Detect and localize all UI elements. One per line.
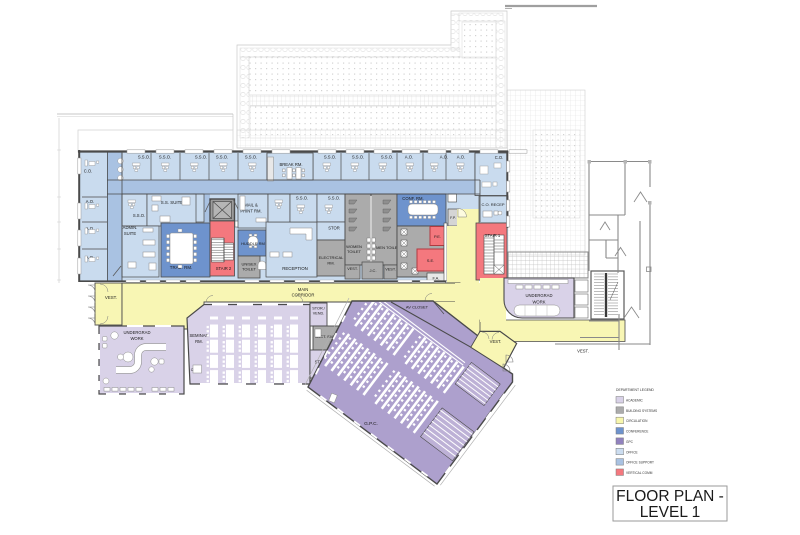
svg-text:A.O.: A.O. <box>457 155 465 160</box>
svg-text:SEMINAR: SEMINAR <box>189 333 208 338</box>
svg-text:S.E.: S.E. <box>427 258 435 263</box>
svg-text:F.A.: F.A. <box>433 276 440 281</box>
svg-text:LEVEL 1: LEVEL 1 <box>640 504 701 521</box>
svg-text:TOILET: TOILET <box>242 267 256 272</box>
svg-text:STAIR 1: STAIR 1 <box>485 233 501 238</box>
svg-text:S.S. SUITE: S.S. SUITE <box>161 200 184 205</box>
svg-text:MAIN: MAIN <box>298 287 308 292</box>
svg-text:C: C <box>191 368 194 372</box>
svg-text:UNDERGRAD: UNDERGRAD <box>124 330 151 335</box>
svg-text:C.O.: C.O. <box>495 155 504 160</box>
svg-text:S.S.O.: S.S.O. <box>216 155 228 160</box>
svg-text:J.C.: J.C. <box>369 268 376 273</box>
svg-text:CORRIDOR: CORRIDOR <box>292 293 315 298</box>
svg-text:OFFICE: OFFICE <box>626 450 638 454</box>
svg-text:DEPARTMENT LEGEND: DEPARTMENT LEGEND <box>616 388 654 392</box>
svg-text:S.S.O.: S.S.O. <box>195 155 207 160</box>
svg-text:S.S.O.: S.S.O. <box>159 155 171 160</box>
svg-text:AV CLOSET: AV CLOSET <box>406 305 429 310</box>
svg-text:S.S.O.: S.S.O. <box>381 155 393 160</box>
svg-text:ELECTRICAL: ELECTRICAL <box>319 255 344 260</box>
svg-text:VEST.: VEST. <box>105 295 117 300</box>
svg-text:F.P.: F.P. <box>450 216 456 220</box>
svg-text:SUITE: SUITE <box>124 231 137 236</box>
svg-text:G.P.C.: G.P.C. <box>364 421 378 427</box>
svg-text:STAIR 2: STAIR 2 <box>216 266 232 271</box>
svg-text:S.S.O.: S.S.O. <box>296 196 308 201</box>
svg-text:RM.: RM. <box>195 339 203 344</box>
svg-text:RM.: RM. <box>327 261 334 266</box>
svg-text:MAIL &: MAIL & <box>244 203 258 208</box>
svg-text:VEST.: VEST. <box>347 267 358 271</box>
svg-text:S.S.O.: S.S.O. <box>352 155 364 160</box>
svg-text:STOR: STOR <box>328 226 340 231</box>
svg-text:VEST.: VEST. <box>385 268 396 272</box>
svg-text:CIRCULATION: CIRCULATION <box>626 419 648 423</box>
svg-text:S.S.O.: S.S.O. <box>328 196 340 201</box>
svg-text:VERTICAL COMM: VERTICAL COMM <box>626 471 653 475</box>
svg-text:C.O. RECEP: C.O. RECEP <box>481 202 504 207</box>
svg-text:UNDERGRAD: UNDERGRAD <box>526 293 553 298</box>
svg-text:BREAK RM.: BREAK RM. <box>279 162 302 167</box>
svg-text:VEND.: VEND. <box>313 312 325 316</box>
svg-text:VEST.: VEST. <box>490 339 502 344</box>
svg-text:VEST.: VEST. <box>577 349 589 354</box>
svg-text:ACADEMIC: ACADEMIC <box>626 399 644 403</box>
svg-text:S.S.O.: S.S.O. <box>133 213 145 218</box>
svg-text:S.S.O.: S.S.O. <box>324 155 336 160</box>
svg-text:RECEPTION: RECEPTION <box>282 266 308 271</box>
svg-text:GPC: GPC <box>626 440 634 444</box>
svg-text:HUDDLE RM: HUDDLE RM <box>241 241 265 246</box>
svg-text:CONF. RM.: CONF. RM. <box>402 196 423 201</box>
svg-text:WORK: WORK <box>130 336 143 341</box>
svg-text:ADMIN.: ADMIN. <box>123 225 138 230</box>
svg-text:BUILDING SYSTEMS: BUILDING SYSTEMS <box>626 409 657 413</box>
svg-text:STOR./: STOR./ <box>312 307 326 311</box>
svg-text:C.O.: C.O. <box>84 169 93 174</box>
svg-text:CONFERENCE: CONFERENCE <box>626 430 648 434</box>
svg-text:FLOOR PLAN -: FLOOR PLAN - <box>616 488 724 505</box>
svg-text:S.S.O.: S.S.O. <box>245 155 257 160</box>
svg-text:TOILET: TOILET <box>347 249 361 254</box>
svg-text:S.S.O.: S.S.O. <box>138 155 150 160</box>
svg-text:WORK: WORK <box>532 300 545 305</box>
svg-text:A.O.: A.O. <box>405 155 413 160</box>
svg-text:OFFICE SUPPORT: OFFICE SUPPORT <box>626 461 654 465</box>
svg-text:P.E.: P.E. <box>434 234 441 239</box>
svg-text:A.O.: A.O. <box>440 155 448 160</box>
